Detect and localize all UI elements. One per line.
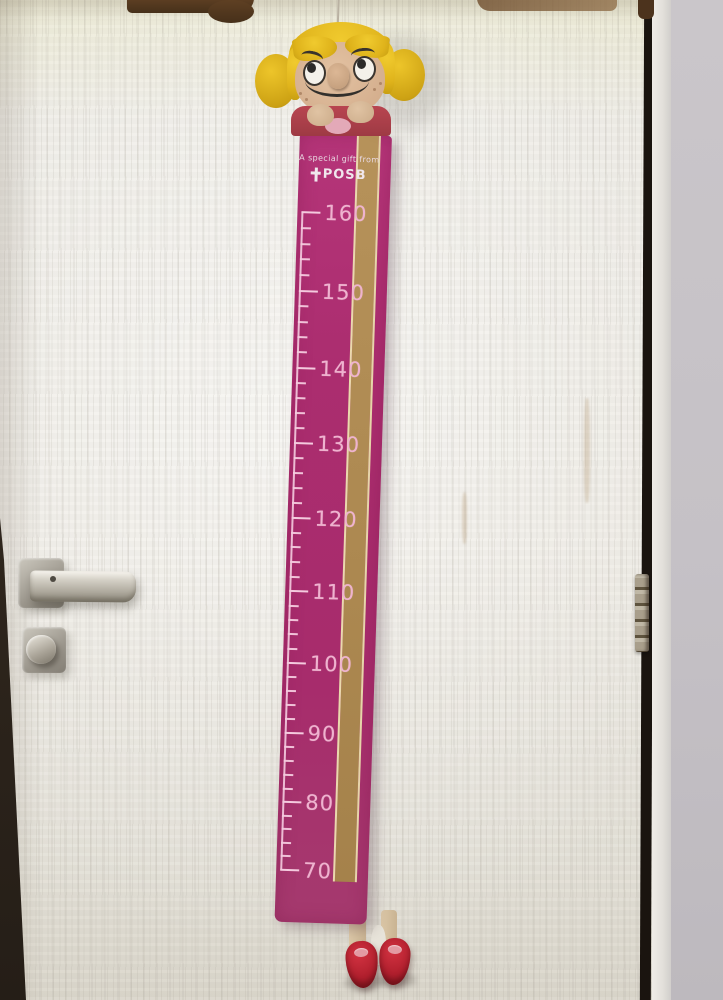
ruler-minor-tick bbox=[301, 227, 311, 229]
ruler-major-tick bbox=[285, 732, 304, 735]
shoe-strap bbox=[388, 945, 403, 955]
ruler-minor-tick bbox=[298, 305, 308, 307]
ruler-minor-tick bbox=[290, 575, 300, 577]
ruler-major-tick bbox=[282, 801, 301, 804]
doll-hand-right bbox=[347, 101, 374, 123]
door-lock-thumbturn bbox=[26, 635, 56, 664]
ruler-minor-tick bbox=[292, 502, 302, 504]
brand-name: POSB bbox=[322, 167, 366, 183]
doll-hand-left bbox=[307, 104, 334, 126]
ruler-minor-tick bbox=[293, 457, 303, 459]
ruler-minor-tick bbox=[288, 633, 298, 635]
brand-row: POSB bbox=[302, 165, 379, 185]
ruler-minor-tick bbox=[293, 472, 303, 474]
ruler-number: 100 bbox=[309, 651, 368, 677]
door-hinge bbox=[635, 574, 649, 652]
ruler-minor-tick bbox=[284, 746, 294, 748]
doll-freckle bbox=[305, 98, 308, 101]
ruler-minor-tick bbox=[285, 704, 295, 706]
doll-pupil-right bbox=[357, 59, 366, 69]
ruler-major-tick bbox=[292, 517, 311, 520]
ruler-minor-tick bbox=[292, 487, 302, 489]
ruler-major-tick bbox=[280, 869, 299, 872]
ruler-minor-tick bbox=[300, 258, 310, 260]
ruler-minor-tick bbox=[286, 690, 296, 692]
doll-head bbox=[253, 18, 429, 138]
ruler-minor-tick bbox=[290, 561, 300, 563]
ruler-number: 160 bbox=[324, 201, 383, 227]
door-stain-mark bbox=[462, 492, 467, 544]
wall bbox=[671, 0, 723, 1000]
ruler-minor-tick bbox=[297, 351, 307, 353]
ruler-number: 90 bbox=[307, 722, 366, 748]
ruler-minor-tick bbox=[288, 619, 298, 621]
ruler-minor-tick bbox=[291, 532, 301, 534]
ruler-major-tick bbox=[296, 367, 315, 370]
shoe-strap bbox=[354, 948, 369, 958]
ruler-minor-tick bbox=[284, 760, 294, 762]
doll-freckle bbox=[373, 88, 376, 91]
doll-freckle bbox=[299, 92, 302, 95]
ruler-minor-tick bbox=[291, 546, 301, 548]
ruler-minor-tick bbox=[297, 336, 307, 338]
ruler-minor-tick bbox=[294, 427, 304, 429]
ruler-minor-tick bbox=[299, 274, 309, 276]
ruler-number: 150 bbox=[322, 279, 381, 305]
ruler-major-tick bbox=[301, 211, 320, 214]
ruler-minor-tick bbox=[281, 842, 291, 844]
top-wood-ornament-lobe bbox=[208, 0, 254, 23]
ruler-minor-tick bbox=[283, 787, 293, 789]
door-stain-mark bbox=[584, 398, 590, 503]
ruler-major-tick bbox=[289, 590, 308, 593]
ruler-number: 140 bbox=[319, 356, 378, 382]
ruler-minor-tick bbox=[283, 774, 293, 776]
posb-logo-icon bbox=[310, 167, 320, 181]
ruler-number: 130 bbox=[317, 432, 376, 458]
top-wood-ornament-corner bbox=[638, 0, 654, 19]
ruler-minor-tick bbox=[287, 647, 297, 649]
ruler-minor-tick bbox=[282, 815, 292, 817]
ruler-minor-tick bbox=[295, 397, 305, 399]
ruler-minor-tick bbox=[295, 412, 305, 414]
door-handle-screw bbox=[50, 576, 56, 582]
ruler-minor-tick bbox=[281, 855, 291, 857]
ruler-minor-tick bbox=[298, 321, 308, 323]
ruler-minor-tick bbox=[286, 676, 296, 678]
ruler-minor-tick bbox=[289, 604, 299, 606]
ruler-minor-tick bbox=[285, 718, 295, 720]
ruler-major-tick bbox=[294, 442, 313, 445]
ruler-major-tick bbox=[287, 662, 306, 665]
door-frame bbox=[652, 0, 672, 1000]
ruler-minor-tick bbox=[296, 382, 306, 384]
ruler-number: 80 bbox=[305, 791, 364, 817]
doll-pupil-left bbox=[307, 63, 316, 73]
ruler-minor-tick bbox=[281, 828, 291, 830]
door-handle-lever bbox=[30, 570, 136, 602]
ruler-number: 70 bbox=[303, 858, 362, 884]
top-wood-ornament-right bbox=[477, 0, 617, 11]
gift-text: A special gift from bbox=[299, 153, 379, 165]
doll-freckle bbox=[379, 82, 382, 85]
ruler-major-tick bbox=[299, 290, 318, 293]
ruler-number: 110 bbox=[312, 580, 371, 606]
ruler-minor-tick bbox=[300, 243, 310, 245]
ruler-number: 120 bbox=[314, 507, 373, 533]
